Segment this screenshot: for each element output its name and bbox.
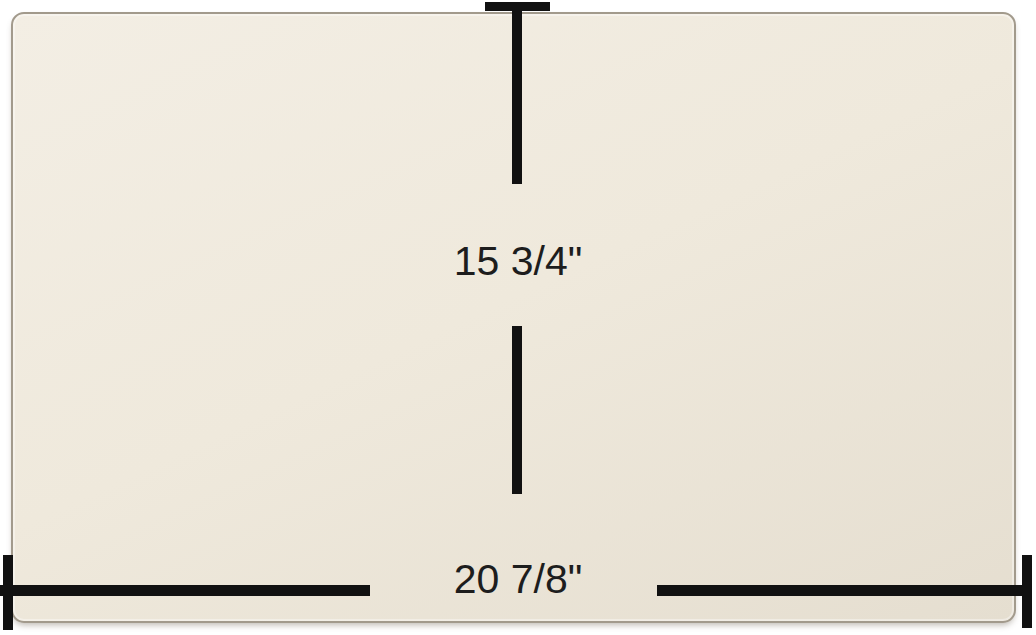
height-dimension-line-upper <box>512 10 522 184</box>
height-dimension-line-lower <box>512 326 522 494</box>
width-dimension-right-tick <box>1022 555 1032 628</box>
height-dimension-label: 15 3/4" <box>388 240 648 283</box>
width-dimension-label: 20 7/8" <box>388 558 648 601</box>
product-dimension-diagram: 15 3/4" 20 7/8" <box>0 0 1036 635</box>
width-dimension-line-right <box>657 585 1031 596</box>
width-dimension-line-left <box>0 585 370 596</box>
